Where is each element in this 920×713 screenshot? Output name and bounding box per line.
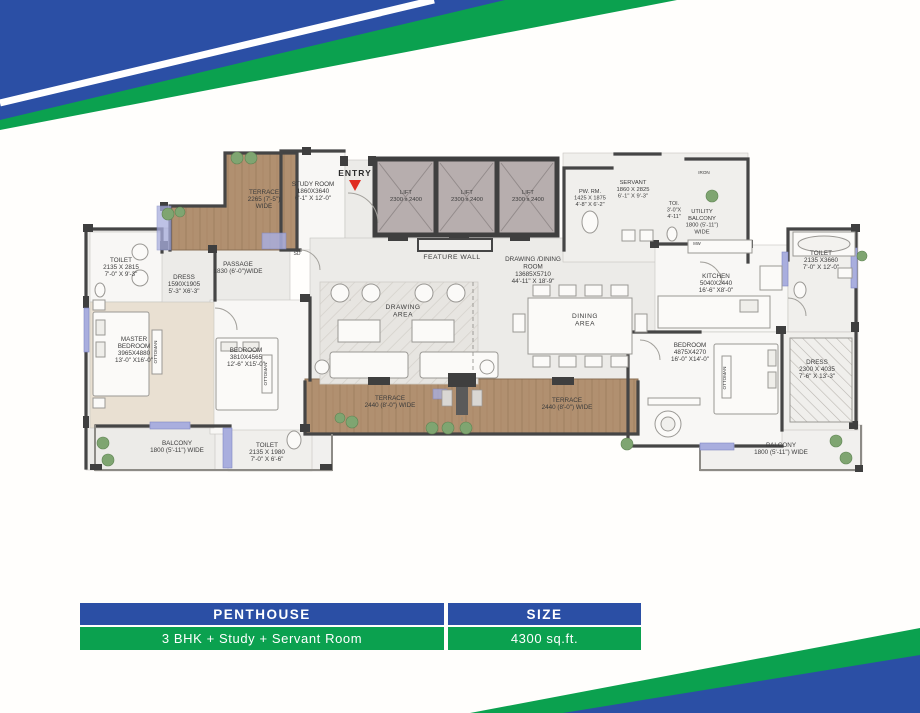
label-kitchen-line-2: 16'-6" X8'-0" xyxy=(699,287,734,294)
label-servant-line-0: SERVANT xyxy=(620,180,647,186)
label-bedroom-right-line-1: 4875X4270 xyxy=(674,349,707,356)
label-bedroom-right-line-0: BEDROOM xyxy=(674,342,707,349)
label-dress-right-line-0: DRESS xyxy=(806,359,828,366)
label-utility-balcony-line-3: WIDE xyxy=(694,229,709,235)
label-drawing-dining-room-line-2: 13685X5710 xyxy=(515,271,551,278)
label-drawing-dining-room-line-1: ROOM xyxy=(523,263,543,270)
label-toilet-left-line-0: TOILET xyxy=(110,257,132,264)
spec-table-value-row: 3 BHK + Study + Servant Room 4300 sq.ft. xyxy=(80,627,641,650)
label-master-bedroom-line-2: 3965X4880 xyxy=(118,350,151,357)
label-dress-left-line-1: 1590X1905 xyxy=(168,281,201,288)
label-study-room-line-2: 6'-1" X 12'-0" xyxy=(295,195,331,202)
label-terrace-bottom-right-line-0: TERRACE xyxy=(552,397,582,404)
spec-header-size: SIZE xyxy=(448,603,641,625)
label-terrace-bottom-right-line-1: 2440 (8'-0") WIDE xyxy=(542,404,593,411)
label-balcony-left-line-0: BALCONY xyxy=(162,440,193,447)
label-toilet-left-line-2: 7'-0" X 9'-3" xyxy=(105,271,138,278)
label-balcony-right-line-0: BALCONY xyxy=(766,442,797,449)
label-terrace-top-line-0: TERRACE xyxy=(249,189,279,196)
label-toilet-bottom-line-1: 2135 X 1980 xyxy=(249,449,285,456)
label-utility-balcony-line-0: UTILITY xyxy=(691,209,713,215)
feature-wall-shape xyxy=(418,239,492,251)
label-ottoman-right: OTTOMAN xyxy=(722,367,727,390)
label-toilet-right-line-2: 7'-0" X 12'-0" xyxy=(803,264,839,271)
label-toilet-bottom-line-0: TOILET xyxy=(256,442,278,449)
label-dress-right-line-1: 2300 X 4035 xyxy=(799,366,835,373)
label-feature-wall: FEATURE WALL xyxy=(423,254,480,261)
label-kitchen-line-0: KITCHEN xyxy=(702,273,730,280)
spec-value-size: 4300 sq.ft. xyxy=(448,627,641,650)
label-dress-left-line-2: 5'-3" X6'-3" xyxy=(168,288,199,295)
label-passage-line-1: 1830 (6'-0")WIDE xyxy=(214,268,263,275)
label-dining-area-line-0: DINING xyxy=(572,313,598,320)
label-drawing-area-line-0: DRAWING xyxy=(385,304,420,311)
label-bedroom-left-line-2: 12'-6" X15'-0" xyxy=(227,361,265,368)
label-pw-rm-line-1: 1425 X 1875 xyxy=(574,196,606,202)
label-bedroom-left-line-0: BEDROOM xyxy=(230,347,263,354)
label-lift-2-line-1: 2300 x 2400 xyxy=(451,197,483,203)
label-sd: SD xyxy=(294,251,301,257)
label-ottoman-mid: OTTOMAN xyxy=(263,363,268,386)
label-terrace-top-line-1: 2265 (7'-5") xyxy=(248,196,281,203)
label-drawing-dining-room-line-3: 44'-11" X 18'-9" xyxy=(512,278,555,285)
label-lift-3-line-1: 2300 x 2400 xyxy=(512,197,544,203)
label-ottoman-left: OTTOMAN xyxy=(153,341,158,364)
label-dining-area-line-1: AREA xyxy=(575,321,595,328)
label-bedroom-left-line-1: 3810X4565 xyxy=(230,354,263,361)
label-dress-right-line-2: 7'-6" X 13'-3" xyxy=(799,373,835,380)
label-master-bedroom-line-0: MASTER xyxy=(121,336,148,343)
label-study-room-line-0: STUDY ROOM xyxy=(292,181,335,188)
label-balcony-left-line-1: 1800 (5'-11") WIDE xyxy=(150,447,204,454)
label-toilet-bottom-line-2: 7'-0" X 6'-6" xyxy=(251,456,284,463)
label-drawing-dining-room-line-0: DRAWING /DINING xyxy=(505,256,561,263)
label-master-bedroom-line-3: 13'-0" X16'-0" xyxy=(115,357,153,364)
label-lift-2-line-0: LIFT xyxy=(461,190,473,196)
label-lift-3-line-0: LIFT xyxy=(522,190,534,196)
entry-label: ENTRY xyxy=(338,168,372,178)
label-terrace-top-line-2: WIDE xyxy=(256,203,272,210)
label-dress-left-line-0: DRESS xyxy=(173,274,195,281)
label-drawing-area-line-1: AREA xyxy=(393,312,413,319)
label-passage-line-0: PASSAGE xyxy=(223,261,253,268)
spec-header-penthouse: PENTHOUSE xyxy=(80,603,444,625)
label-lift-1-line-1: 2300 x 2400 xyxy=(390,197,422,203)
label-servant-line-2: 6'-1" X 9'-3" xyxy=(618,194,648,200)
label-toilet-right-line-0: TOILET xyxy=(810,250,832,257)
label-lift-1-line-0: LIFT xyxy=(400,190,412,196)
label-kitchen-line-1: 5040X2440 xyxy=(700,280,733,287)
label-pw-rm-line-0: PW. RM. xyxy=(579,189,602,195)
label-master-bedroom-line-1: BEDROOM xyxy=(118,343,151,350)
label-toilet-right-line-1: 2135 X3660 xyxy=(804,257,838,264)
label-terrace-bottom-left-line-0: TERRACE xyxy=(375,395,405,402)
label-bedroom-right-line-2: 16'-0" X14'-0" xyxy=(671,356,709,363)
label-toilet-left-line-1: 2135 X 2815 xyxy=(103,264,139,271)
label-mw: MW xyxy=(693,241,700,246)
label-study-room-line-1: 1860X3640 xyxy=(297,188,330,195)
label-toi-line-2: 4'-11" xyxy=(667,214,680,220)
label-terrace-bottom-left-line-1: 2440 (8'-0") WIDE xyxy=(365,402,416,409)
spec-value-configuration: 3 BHK + Study + Servant Room xyxy=(80,627,444,650)
label-toi-line-0: TOI. xyxy=(669,201,679,207)
label-pw-rm-line-2: 4'-8" X 6'-2" xyxy=(575,202,604,208)
page: ENTRY TERRACE2265 (7'-5")WIDESTUDY ROOM1… xyxy=(0,0,920,713)
label-utility-balcony-line-1: BALCONY xyxy=(688,216,716,222)
label-utility-balcony-line-2: 1800 (5'-11") xyxy=(686,223,719,229)
label-iron: IRON xyxy=(698,170,709,175)
label-servant-line-1: 1860 X 2825 xyxy=(617,187,650,193)
spec-table-header-row: PENTHOUSE SIZE xyxy=(80,603,641,625)
label-balcony-right-line-1: 1800 (5'-11") WIDE xyxy=(754,449,808,456)
spec-table: PENTHOUSE SIZE 3 BHK + Study + Servant R… xyxy=(80,603,641,652)
label-toi-line-1: 3'-0"X xyxy=(667,207,682,213)
